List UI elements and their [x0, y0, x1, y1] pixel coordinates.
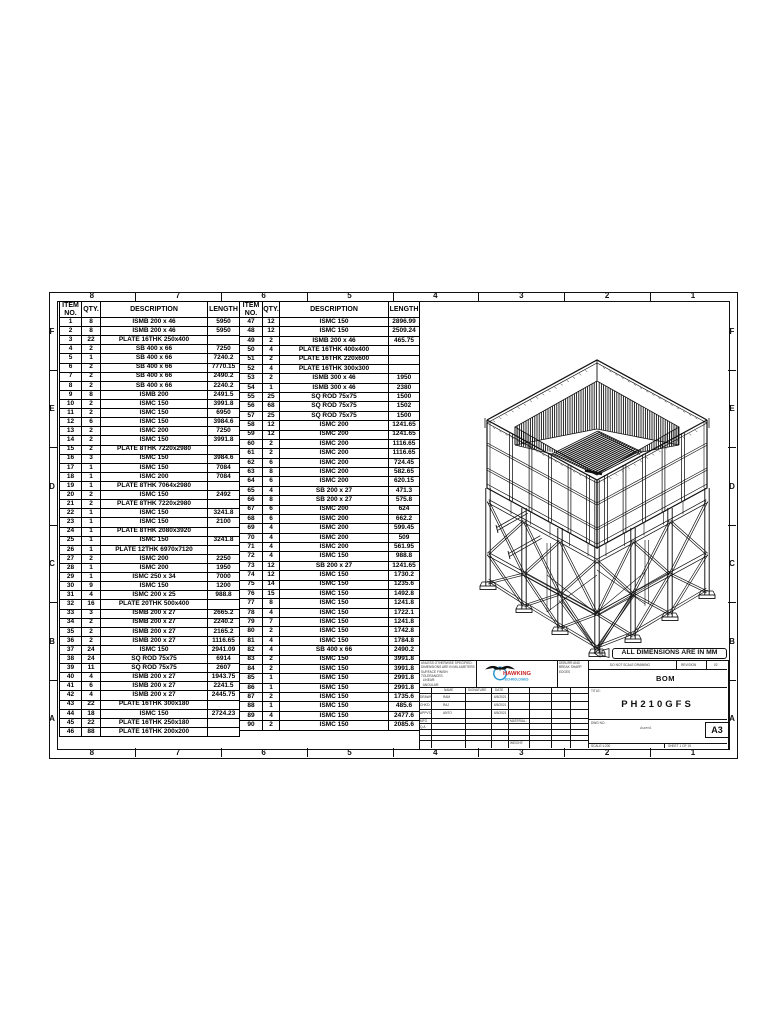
svg-text:TECHNOLOGIES: TECHNOLOGIES	[503, 678, 529, 682]
svg-text:HAWKING: HAWKING	[503, 671, 532, 677]
